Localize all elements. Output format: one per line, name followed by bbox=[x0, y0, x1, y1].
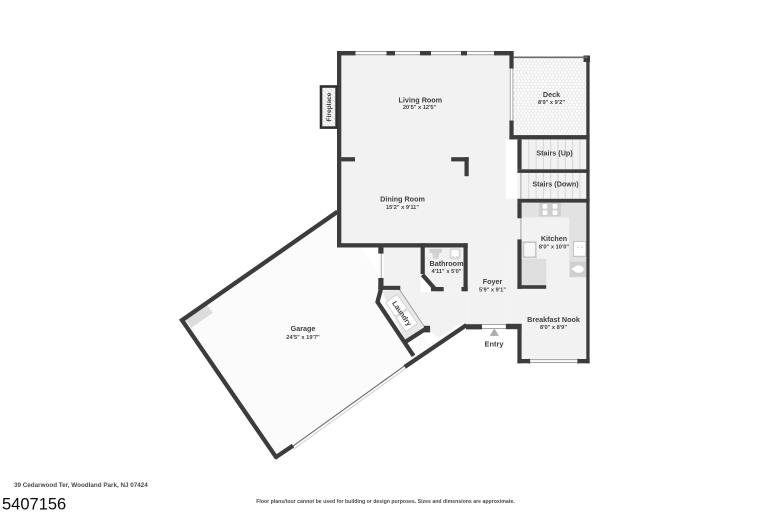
svg-text:8'0" x 10'0": 8'0" x 10'0" bbox=[539, 244, 570, 250]
svg-text:8'9" x 9'2": 8'9" x 9'2" bbox=[538, 100, 565, 106]
svg-text:Stairs (Down): Stairs (Down) bbox=[532, 179, 579, 188]
svg-text:4'11" x 5'0": 4'11" x 5'0" bbox=[432, 269, 462, 275]
svg-text:Entry: Entry bbox=[485, 339, 505, 348]
svg-text:Living Room: Living Room bbox=[399, 95, 443, 104]
svg-text:Deck: Deck bbox=[543, 90, 560, 99]
svg-text:Fireplace: Fireplace bbox=[326, 92, 333, 121]
svg-text:24'5" x 19'7": 24'5" x 19'7" bbox=[286, 335, 320, 341]
svg-text:Garage: Garage bbox=[291, 324, 316, 333]
svg-text:Foyer: Foyer bbox=[483, 277, 503, 286]
svg-text:39 Cedarwood Ter, Woodland Par: 39 Cedarwood Ter, Woodland Park, NJ 0742… bbox=[14, 482, 148, 489]
svg-text:Dining Room: Dining Room bbox=[380, 195, 425, 204]
svg-text:5'9" x 9'1": 5'9" x 9'1" bbox=[479, 287, 506, 293]
svg-text:Breakfast Nook: Breakfast Nook bbox=[527, 315, 580, 324]
svg-text:Floor plans/tour cannot be use: Floor plans/tour cannot be used for buil… bbox=[256, 499, 515, 505]
svg-text:5407156: 5407156 bbox=[2, 496, 66, 512]
svg-text:8'0" x 8'9": 8'0" x 8'9" bbox=[540, 325, 567, 331]
svg-text:Stairs (Up): Stairs (Up) bbox=[536, 148, 573, 157]
svg-text:20'5" x 12'5": 20'5" x 12'5" bbox=[403, 105, 437, 111]
svg-text:15'2" x 9'11": 15'2" x 9'11" bbox=[386, 205, 419, 211]
svg-text:Kitchen: Kitchen bbox=[541, 234, 567, 243]
svg-text:Bathroom: Bathroom bbox=[430, 259, 464, 268]
